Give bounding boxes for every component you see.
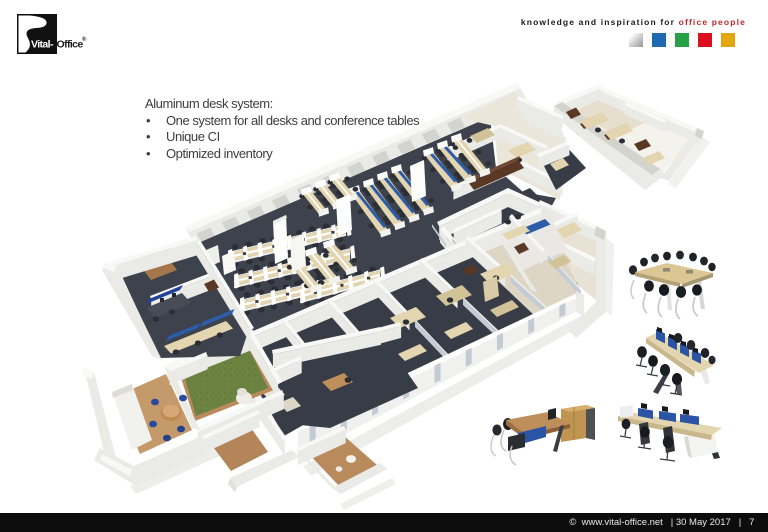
svg-text:Vital-: Vital- xyxy=(31,39,54,51)
svg-text:®: ® xyxy=(82,36,87,43)
svg-text:Office: Office xyxy=(57,39,84,51)
